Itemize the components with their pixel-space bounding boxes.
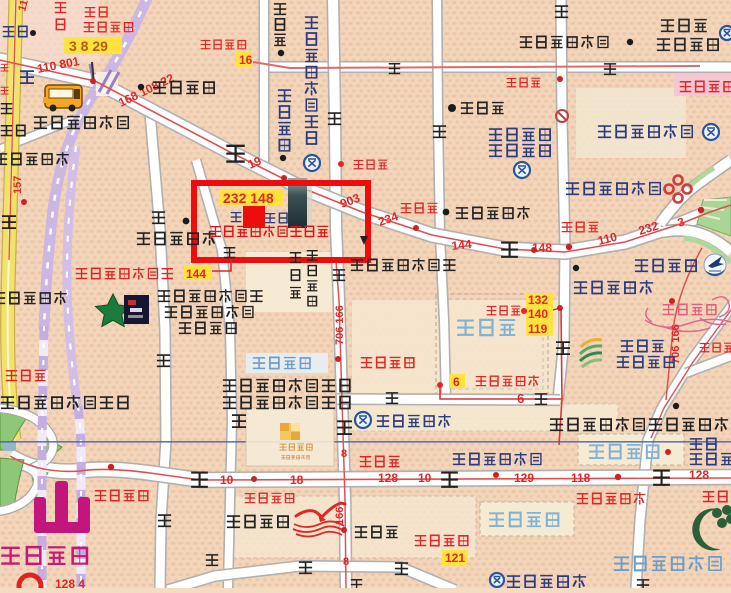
svg-text:118: 118 bbox=[571, 471, 591, 485]
svg-text:8: 8 bbox=[341, 448, 347, 460]
svg-text:232 148: 232 148 bbox=[223, 190, 274, 206]
svg-text:128: 128 bbox=[378, 471, 398, 485]
svg-text:129: 129 bbox=[514, 471, 534, 485]
svg-text:157: 157 bbox=[12, 176, 24, 194]
svg-text:706 166: 706 166 bbox=[334, 305, 346, 345]
svg-text:132: 132 bbox=[528, 293, 548, 307]
svg-text:128: 128 bbox=[689, 468, 709, 482]
svg-text:10: 10 bbox=[220, 473, 234, 487]
svg-text:706 166: 706 166 bbox=[670, 324, 682, 364]
svg-text:121: 121 bbox=[445, 551, 465, 565]
svg-text:144: 144 bbox=[186, 267, 206, 281]
svg-text:6: 6 bbox=[453, 375, 460, 389]
svg-text:3 8 29: 3 8 29 bbox=[69, 38, 108, 54]
svg-text:16: 16 bbox=[239, 53, 253, 67]
svg-text:166: 166 bbox=[334, 507, 346, 525]
svg-text:128 4: 128 4 bbox=[55, 577, 85, 588]
svg-text:8: 8 bbox=[343, 556, 349, 568]
svg-text:144: 144 bbox=[451, 237, 473, 253]
svg-text:140: 140 bbox=[528, 307, 548, 321]
svg-text:6: 6 bbox=[517, 391, 524, 406]
svg-text:10: 10 bbox=[418, 471, 432, 485]
svg-text:18: 18 bbox=[290, 473, 304, 487]
svg-text:119: 119 bbox=[528, 322, 548, 336]
